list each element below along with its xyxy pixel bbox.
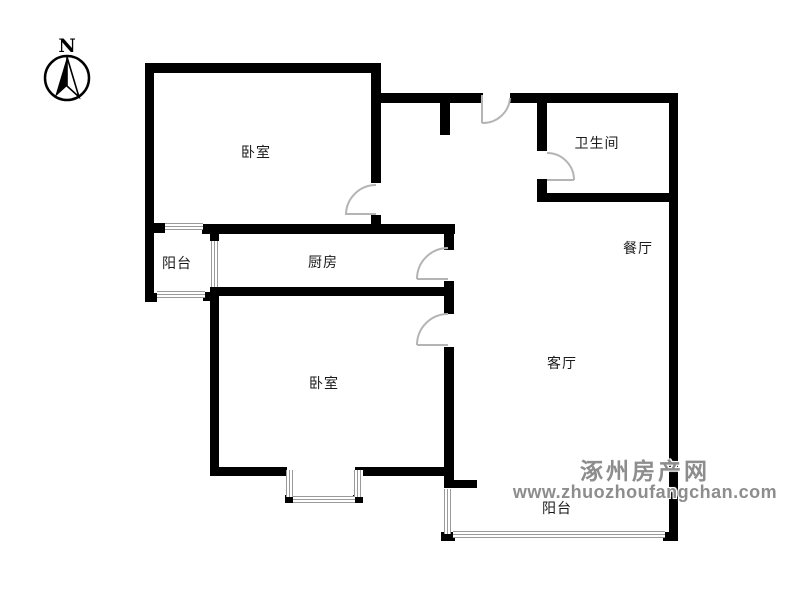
room-label-kitchen: 厨房 xyxy=(308,252,338,272)
room-label-bedroom-bottom: 卧室 xyxy=(309,373,339,393)
door-arc-bathroom xyxy=(547,153,574,180)
watermark-site-url: www.zhuozhoufangchan.com xyxy=(513,483,777,502)
door-arc-bedroom-top xyxy=(346,185,376,215)
room-label-dining: 餐厅 xyxy=(623,238,653,258)
door-arc-kitchen xyxy=(417,248,448,279)
room-label-living: 客厅 xyxy=(547,353,577,373)
room-label-bedroom-top: 卧室 xyxy=(241,142,271,162)
room-label-bathroom: 卫生间 xyxy=(575,133,620,153)
door-arc-bedroom-bottom xyxy=(417,314,448,345)
room-label-balcony-left: 阳台 xyxy=(162,253,192,273)
doors-layer xyxy=(0,0,800,600)
door-arc-entrance xyxy=(482,98,510,123)
watermark-site-name: 涿州房产网 xyxy=(513,459,777,483)
floor-plan: N xyxy=(0,0,800,600)
watermark: 涿州房产网 www.zhuozhoufangchan.com xyxy=(513,459,777,502)
